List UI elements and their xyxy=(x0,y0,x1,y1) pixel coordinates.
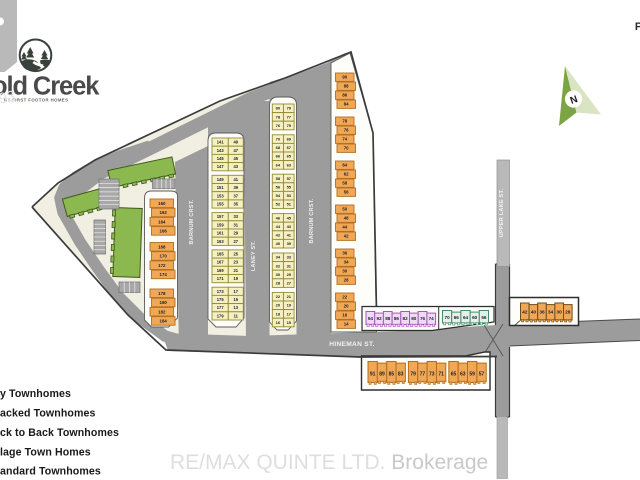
svg-text:54: 54 xyxy=(276,193,281,198)
svg-text:andard Townhomes: andard Townhomes xyxy=(0,466,101,478)
svg-text:64: 64 xyxy=(463,315,469,320)
svg-text:169: 169 xyxy=(217,268,225,273)
svg-text:76: 76 xyxy=(276,123,281,128)
svg-text:19: 19 xyxy=(234,276,239,281)
svg-text:179: 179 xyxy=(217,313,225,318)
svg-text:lage Town Homes: lage Town Homes xyxy=(0,447,91,459)
svg-text:56: 56 xyxy=(276,185,281,190)
svg-text:182: 182 xyxy=(158,309,166,314)
svg-text:160: 160 xyxy=(158,201,166,206)
svg-text:P: P xyxy=(635,21,640,33)
svg-text:34: 34 xyxy=(344,260,349,265)
svg-text:45: 45 xyxy=(287,215,292,220)
svg-text:15: 15 xyxy=(287,320,292,325)
svg-text:43: 43 xyxy=(234,164,239,169)
svg-text:167: 167 xyxy=(217,260,225,265)
svg-text:170: 170 xyxy=(160,254,168,259)
svg-text:44: 44 xyxy=(342,225,347,230)
svg-text:59: 59 xyxy=(469,372,475,378)
svg-text:y Townhomes: y Townhomes xyxy=(0,388,71,400)
svg-text:145: 145 xyxy=(217,156,225,161)
svg-text:88: 88 xyxy=(344,84,349,89)
svg-text:141: 141 xyxy=(217,140,225,145)
svg-text:157: 157 xyxy=(217,214,225,219)
svg-text:85: 85 xyxy=(389,372,395,378)
svg-text:82: 82 xyxy=(403,316,409,321)
svg-text:20: 20 xyxy=(344,304,349,309)
svg-text:62: 62 xyxy=(344,172,349,177)
svg-text:36: 36 xyxy=(539,310,545,316)
svg-text:92: 92 xyxy=(377,316,383,321)
svg-text:73: 73 xyxy=(429,372,435,378)
svg-text:28: 28 xyxy=(565,310,571,316)
svg-text:74: 74 xyxy=(429,316,435,321)
svg-text:15: 15 xyxy=(234,297,239,302)
svg-text:16: 16 xyxy=(276,320,281,325)
svg-text:89: 89 xyxy=(379,372,385,378)
svg-text:33: 33 xyxy=(234,214,239,219)
svg-text:41: 41 xyxy=(234,177,239,182)
svg-text:173: 173 xyxy=(217,289,225,294)
svg-text:155: 155 xyxy=(217,202,225,207)
svg-text:149: 149 xyxy=(217,177,225,182)
svg-text:25: 25 xyxy=(234,252,239,257)
svg-text:22: 22 xyxy=(276,294,281,299)
svg-text:48: 48 xyxy=(344,216,349,221)
svg-text:60: 60 xyxy=(472,315,478,320)
svg-text:30: 30 xyxy=(342,269,347,274)
svg-text:94: 94 xyxy=(368,316,374,321)
svg-text:31: 31 xyxy=(287,263,292,268)
svg-text:66: 66 xyxy=(276,154,281,159)
svg-text:174: 174 xyxy=(160,272,168,277)
svg-text:70: 70 xyxy=(276,137,281,142)
svg-text:65: 65 xyxy=(451,372,457,378)
svg-text:58: 58 xyxy=(342,181,347,186)
svg-text:43: 43 xyxy=(287,224,292,229)
svg-text:17: 17 xyxy=(234,289,239,294)
svg-text:71: 71 xyxy=(438,372,444,378)
svg-text:11: 11 xyxy=(234,313,239,318)
svg-text:84: 84 xyxy=(344,102,349,107)
svg-text:19: 19 xyxy=(287,303,292,308)
svg-text:37: 37 xyxy=(234,193,239,198)
svg-text:LANEY ST.: LANEY ST. xyxy=(251,241,257,272)
svg-text:53: 53 xyxy=(287,193,292,198)
svg-text:17: 17 xyxy=(287,311,292,316)
svg-text:86: 86 xyxy=(394,316,400,321)
svg-text:42: 42 xyxy=(276,233,281,238)
svg-text:HINEMAN ST.: HINEMAN ST. xyxy=(329,341,374,348)
svg-text:79: 79 xyxy=(410,372,416,378)
svg-text:44: 44 xyxy=(276,224,281,229)
svg-text:161: 161 xyxy=(217,231,225,236)
svg-text:27: 27 xyxy=(234,239,239,244)
svg-text:178: 178 xyxy=(158,291,166,296)
svg-text:64: 64 xyxy=(276,162,281,167)
svg-text:42: 42 xyxy=(522,310,528,316)
svg-text:RE/MAX QUINTE LTD. Brokerage: RE/MAX QUINTE LTD. Brokerage xyxy=(170,451,488,474)
svg-text:177: 177 xyxy=(217,305,225,310)
svg-text:BARNUM CRST.: BARNUM CRST. xyxy=(189,199,195,244)
svg-text:22: 22 xyxy=(342,295,347,300)
svg-text:80: 80 xyxy=(411,316,417,321)
svg-text:184: 184 xyxy=(160,319,168,324)
svg-text:153: 153 xyxy=(217,193,225,198)
svg-text:21: 21 xyxy=(234,268,239,273)
svg-text:78: 78 xyxy=(276,114,281,119)
svg-text:166: 166 xyxy=(160,229,168,234)
svg-text:88: 88 xyxy=(385,316,391,321)
svg-text:165: 165 xyxy=(217,252,225,257)
svg-text:76: 76 xyxy=(344,128,349,133)
svg-text:67: 67 xyxy=(287,145,292,150)
svg-text:51: 51 xyxy=(287,202,292,207)
svg-text:39: 39 xyxy=(287,241,292,246)
svg-text:175: 175 xyxy=(217,297,225,302)
svg-text:79: 79 xyxy=(287,106,292,111)
svg-text:28: 28 xyxy=(276,281,281,286)
svg-text:UPPER LAKE ST.: UPPER LAKE ST. xyxy=(499,189,505,238)
svg-text:76: 76 xyxy=(420,316,426,321)
svg-text:21: 21 xyxy=(287,294,292,299)
svg-text:66: 66 xyxy=(454,315,460,320)
svg-text:20: 20 xyxy=(276,303,281,308)
svg-text:34: 34 xyxy=(548,310,554,316)
svg-text:27: 27 xyxy=(287,281,292,286)
svg-text:56: 56 xyxy=(481,315,487,320)
svg-text:58: 58 xyxy=(276,176,281,181)
svg-text:159: 159 xyxy=(217,222,225,227)
svg-text:28: 28 xyxy=(344,278,349,283)
svg-text:172: 172 xyxy=(158,263,166,268)
svg-text:46: 46 xyxy=(276,215,281,220)
svg-text:52: 52 xyxy=(276,202,281,207)
svg-text:74: 74 xyxy=(342,137,347,142)
svg-text:164: 164 xyxy=(158,219,166,224)
svg-text:42: 42 xyxy=(344,234,349,239)
svg-text:57: 57 xyxy=(479,372,485,378)
svg-text:163: 163 xyxy=(217,239,225,244)
svg-text:151: 151 xyxy=(217,185,225,190)
svg-text:86: 86 xyxy=(342,93,347,98)
svg-text:65: 65 xyxy=(287,154,292,159)
svg-text:91: 91 xyxy=(370,372,376,378)
svg-text:56: 56 xyxy=(344,190,349,195)
svg-text:BARNUM CRST.: BARNUM CRST. xyxy=(309,198,315,243)
svg-text:90: 90 xyxy=(342,75,347,80)
svg-text:168: 168 xyxy=(158,244,166,249)
svg-text:75: 75 xyxy=(287,123,292,128)
svg-text:31: 31 xyxy=(234,222,239,227)
svg-text:77: 77 xyxy=(287,114,292,119)
svg-text:64: 64 xyxy=(342,163,347,168)
svg-text:40: 40 xyxy=(531,310,537,316)
svg-text:39: 39 xyxy=(234,185,239,190)
svg-text:49: 49 xyxy=(234,140,239,145)
svg-text:162: 162 xyxy=(160,210,168,215)
svg-text:30: 30 xyxy=(557,310,563,316)
svg-text:29: 29 xyxy=(234,231,239,236)
svg-text:18: 18 xyxy=(276,311,281,316)
svg-text:69: 69 xyxy=(287,137,292,142)
svg-text:32: 32 xyxy=(276,263,281,268)
svg-text:14: 14 xyxy=(344,322,349,327)
svg-text:63: 63 xyxy=(287,162,292,167)
svg-text:57: 57 xyxy=(287,176,292,181)
svg-text:acked Townhomes: acked Townhomes xyxy=(0,408,96,420)
svg-text:55: 55 xyxy=(287,185,292,190)
svg-text:29: 29 xyxy=(287,272,292,277)
svg-text:147: 147 xyxy=(217,164,225,169)
svg-text:34: 34 xyxy=(276,255,281,260)
svg-text:33: 33 xyxy=(287,255,292,260)
svg-text:70: 70 xyxy=(344,146,349,151)
svg-text:16: 16 xyxy=(342,313,347,318)
svg-text:40: 40 xyxy=(276,241,281,246)
svg-text:77: 77 xyxy=(420,372,426,378)
svg-text:ck to Back Townhomes: ck to Back Townhomes xyxy=(0,427,119,439)
svg-text:13: 13 xyxy=(234,305,239,310)
svg-text:80: 80 xyxy=(276,106,281,111)
svg-text:50: 50 xyxy=(342,207,347,212)
svg-text:180: 180 xyxy=(160,300,168,305)
svg-text:143: 143 xyxy=(217,148,225,153)
svg-text:83: 83 xyxy=(398,372,404,378)
svg-text:45: 45 xyxy=(234,156,239,161)
svg-text:78: 78 xyxy=(342,119,347,124)
svg-text:70: 70 xyxy=(445,315,451,320)
svg-text:47: 47 xyxy=(234,148,239,153)
svg-text:41: 41 xyxy=(287,233,292,238)
svg-text:63: 63 xyxy=(460,372,466,378)
svg-text:35: 35 xyxy=(234,202,239,207)
svg-text:23: 23 xyxy=(234,260,239,265)
svg-text:36: 36 xyxy=(342,251,347,256)
svg-text:171: 171 xyxy=(217,276,225,281)
svg-text:68: 68 xyxy=(276,145,281,150)
svg-text:30: 30 xyxy=(276,272,281,277)
